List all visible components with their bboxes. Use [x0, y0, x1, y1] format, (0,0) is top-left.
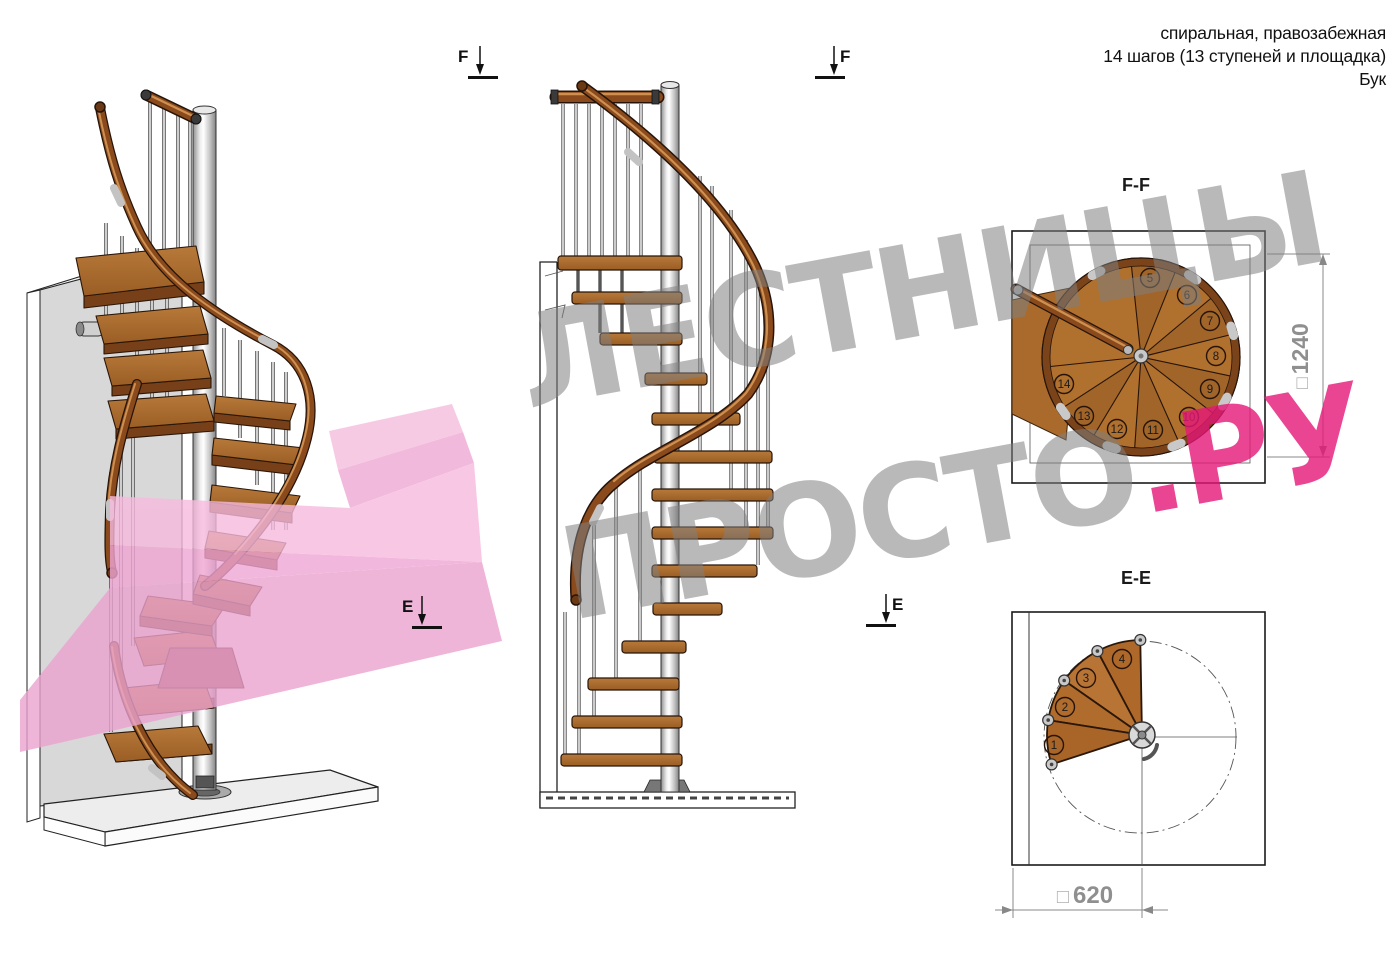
stair-type: спиральная, правозабежная	[1103, 22, 1386, 45]
view-section-ff: 5 6 7 8 9 10 11 12 13 14 □1240	[1012, 231, 1330, 483]
step-number: 4	[1119, 654, 1126, 666]
step-number: 5	[1147, 273, 1153, 285]
ee-dimension-label: □620	[1057, 882, 1113, 909]
view-elevation	[540, 81, 795, 808]
drawing-canvas: 5 6 7 8 9 10 11 12 13 14 □1240	[0, 0, 1400, 961]
step-number: 8	[1213, 351, 1219, 363]
step-number: 13	[1078, 411, 1091, 423]
view-section-ee: 1 2 3 4 □620	[995, 612, 1265, 918]
step-number: 7	[1207, 316, 1213, 328]
marker-letter: E	[892, 595, 903, 614]
pole-top-cap-elevation	[661, 82, 679, 89]
step-number: 2	[1062, 702, 1068, 714]
floor-outline	[540, 792, 795, 808]
step-number: 1	[1051, 740, 1057, 752]
stair-material: Бук	[1103, 68, 1386, 91]
step-number: 12	[1111, 424, 1124, 436]
drawing-sheet: 5 6 7 8 9 10 11 12 13 14 □1240	[0, 0, 1400, 961]
ff-dimension-label: □1240	[1287, 323, 1313, 389]
step-number: 9	[1207, 384, 1213, 396]
marker-letter: F	[840, 47, 850, 66]
wall-outline	[540, 262, 557, 808]
wall-bracket-cap	[76, 322, 84, 336]
step-number: 11	[1147, 425, 1159, 437]
step-number: 6	[1184, 290, 1190, 302]
title-block: спиральная, правозабежная 14 шагов (13 с…	[1103, 22, 1386, 91]
pole-base-collar	[196, 776, 214, 788]
step-number: 3	[1083, 673, 1089, 685]
marker-letter: E	[402, 597, 413, 616]
step-number: 10	[1183, 412, 1196, 424]
ee-title: E-E	[1091, 568, 1181, 589]
ff-pole-cap-dot	[1139, 354, 1144, 359]
marker-letter: F	[458, 47, 468, 66]
stair-steps: 14 шагов (13 ступеней и площадка)	[1103, 45, 1386, 68]
pole-top-cap	[193, 106, 216, 114]
wall-break-lines	[545, 271, 565, 318]
ff-title: F-F	[1091, 175, 1181, 196]
step-number: 14	[1058, 379, 1071, 391]
